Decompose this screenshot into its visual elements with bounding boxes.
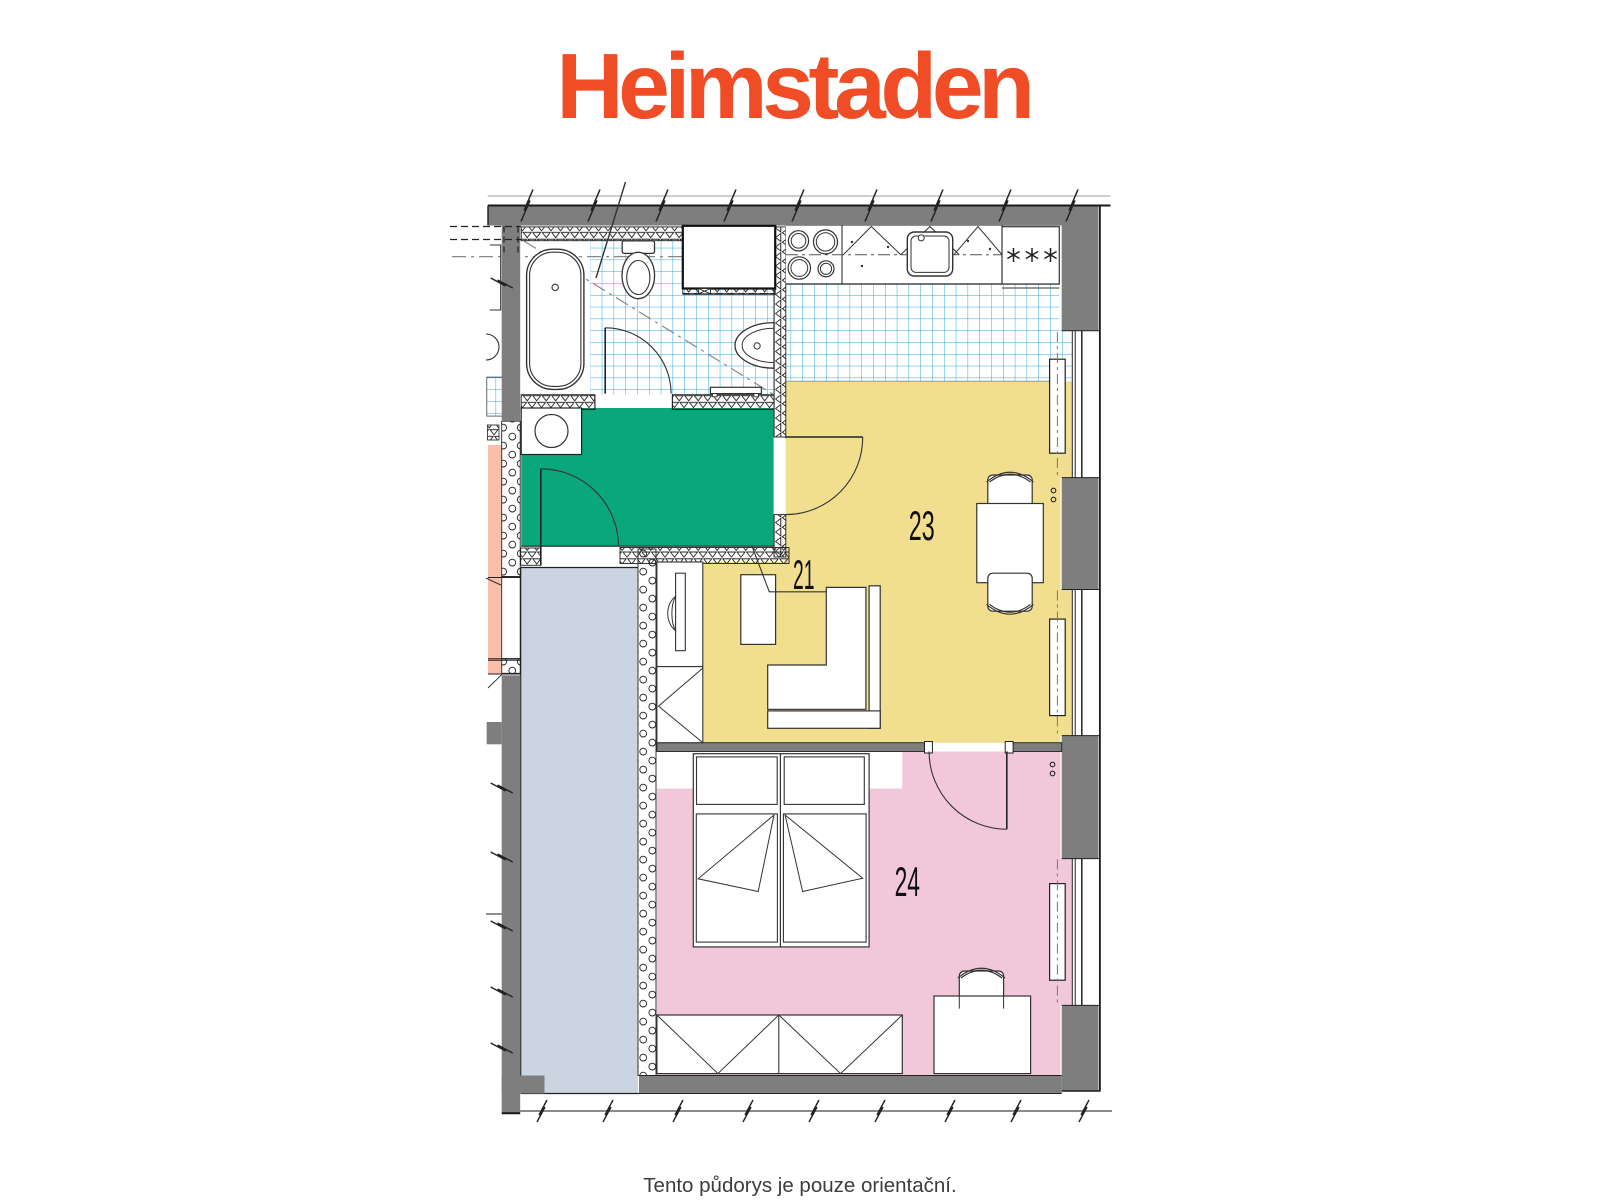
svg-text:Tento půdorys je pouze orienta: Tento půdorys je pouze orientační.	[643, 1174, 956, 1197]
svg-text:23: 23	[909, 502, 935, 549]
svg-text:24: 24	[895, 858, 920, 905]
svg-text:Heimstaden: Heimstaden	[556, 34, 1030, 138]
svg-text:21: 21	[793, 551, 815, 598]
